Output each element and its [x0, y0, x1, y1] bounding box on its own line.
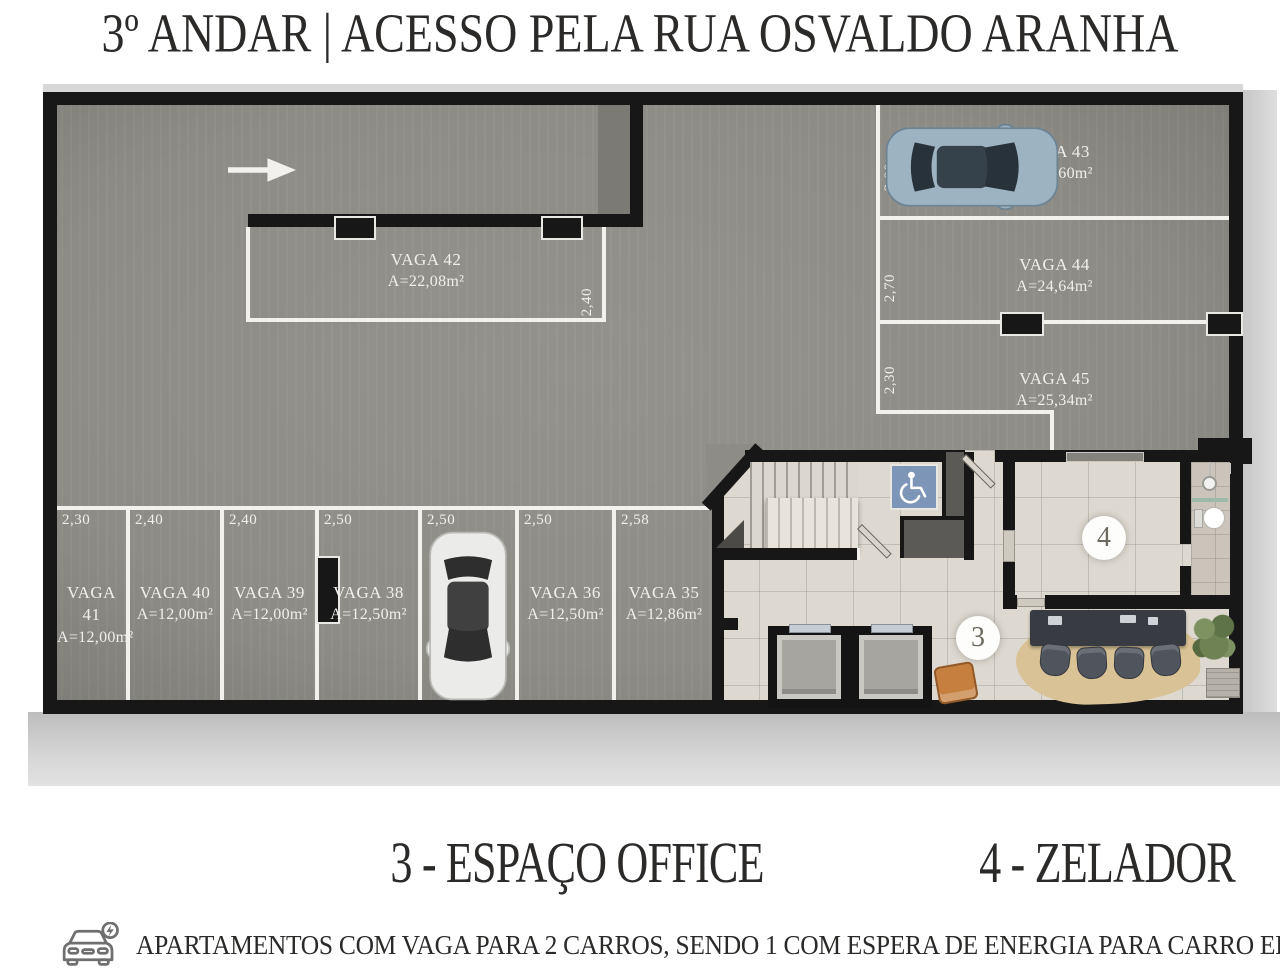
- stall-width-dim: 2,40: [135, 512, 163, 529]
- stall-name: VAGA 45: [880, 368, 1229, 390]
- stall-name: VAGA 35: [616, 582, 712, 604]
- stall-width-dim: 2,40: [229, 512, 257, 529]
- wall: [1180, 566, 1191, 606]
- shaft-shadow-patch: [598, 105, 630, 217]
- plant: [1190, 610, 1238, 664]
- wall: [1003, 595, 1017, 609]
- accessible-sign: [890, 464, 938, 510]
- parking-stall-vaga38: 2,50 VAGA 38 A=12,50m²: [319, 510, 418, 700]
- desk-item: [1120, 615, 1136, 623]
- shaft-fixture: [900, 516, 964, 558]
- wall: [712, 548, 860, 560]
- orange-chair: [933, 661, 979, 705]
- stall-width-dim: 2,50: [324, 512, 352, 529]
- car-top-view-white: [424, 530, 512, 702]
- parking-stall-vaga36: 2,50 VAGA 36 A=12,50m²: [519, 510, 612, 700]
- wall: [1003, 450, 1015, 530]
- stall-width-dim: 2,50: [524, 512, 552, 529]
- desk-item: [1048, 616, 1062, 625]
- elevator: [768, 626, 850, 708]
- wall: [1180, 462, 1191, 544]
- stall-name: VAGA 42: [246, 249, 606, 271]
- page-title: 3º ANDAR | ACESSO PELA RUA OSVALDO ARANH…: [102, 1, 1179, 65]
- zelador-marker-number: 4: [1097, 522, 1111, 554]
- toilet-tank: [1194, 509, 1203, 528]
- parking-stall-vaga44: 2,70 VAGA 44 A=24,64m²: [880, 220, 1229, 320]
- stall-area: A=12,00m²: [57, 627, 126, 648]
- ground-apron-bottom: [28, 712, 1280, 786]
- stall-area: A=12,50m²: [319, 604, 418, 625]
- wall: [1045, 595, 1243, 609]
- wall: [43, 92, 57, 714]
- legend-espaco-office: 3 - ESPAÇO OFFICE: [390, 830, 763, 896]
- wheelchair-icon: [897, 470, 931, 504]
- wall: [248, 214, 643, 227]
- ground-apron-right: [1243, 90, 1277, 716]
- stall-area: A=24,64m²: [880, 276, 1229, 297]
- glass-shelf: [1192, 498, 1228, 502]
- parking-stall-vaga41: 2,30 VAGA 41 A=12,00m²: [57, 510, 126, 700]
- door-threshold: [1017, 598, 1045, 607]
- stall-area: A=12,86m²: [616, 604, 712, 625]
- door-threshold: [1003, 530, 1015, 562]
- office-chair: [1113, 646, 1145, 680]
- stall-name: VAGA 38: [319, 582, 418, 604]
- zelador-marker: 4: [1082, 516, 1126, 560]
- stall-name: VAGA 39: [224, 582, 315, 604]
- footnote-text: APARTAMENTOS COM VAGA PARA 2 CARROS, SEN…: [136, 930, 1280, 962]
- stall-area: A=12,50m²: [519, 604, 612, 625]
- stall-name: VAGA 36: [519, 582, 612, 604]
- stall-width-dim: 2,30: [62, 512, 90, 529]
- floor-mat: [1206, 668, 1240, 698]
- stall-area: A=25,34m²: [880, 390, 1229, 411]
- staircase-landing: [766, 498, 858, 550]
- shower-head: [1202, 476, 1217, 491]
- elevator: [850, 626, 932, 708]
- wall: [712, 492, 724, 714]
- parking-stall-vaga42: VAGA 42 A=22,08m² 2,40: [246, 227, 606, 322]
- stall-area: A=22,08m²: [246, 271, 606, 292]
- stall-area: A=12,00m²: [130, 604, 220, 625]
- stall-name: VAGA 44: [880, 254, 1229, 276]
- parking-stall-vaga39: 2,40 VAGA 39 A=12,00m²: [224, 510, 315, 700]
- stall-width-dim: 2,50: [427, 512, 455, 529]
- car-top-view-blue: [884, 119, 1060, 215]
- parking-stall-vaga45: 2,30 VAGA 45 A=25,34m²: [880, 324, 1229, 452]
- wall: [43, 92, 1243, 105]
- legend-zelador: 4 - ZELADOR: [979, 830, 1235, 896]
- office-marker: 3: [956, 616, 1000, 660]
- wall: [712, 618, 738, 630]
- elevator-threshold: [871, 624, 913, 633]
- desk-item: [1148, 617, 1158, 625]
- stall-area: A=12,00m²: [224, 604, 315, 625]
- parking-stall-vaga35: 2,58 VAGA 35 A=12,86m²: [616, 510, 712, 700]
- stall-width-dim: 2,58: [621, 512, 649, 529]
- office-marker-number: 3: [971, 622, 985, 654]
- stall-name: VAGA 40: [130, 582, 220, 604]
- shaft-fixture: [942, 452, 964, 516]
- window: [1066, 452, 1144, 462]
- toilet-bowl: [1203, 507, 1225, 529]
- stall-width-dim: 2,40: [579, 288, 596, 316]
- elevator-threshold: [789, 624, 831, 633]
- stall-name: VAGA 41: [57, 582, 126, 627]
- wall: [630, 100, 643, 227]
- electric-car-icon: [56, 922, 122, 968]
- parking-stall-vaga40: 2,40 VAGA 40 A=12,00m²: [130, 510, 220, 700]
